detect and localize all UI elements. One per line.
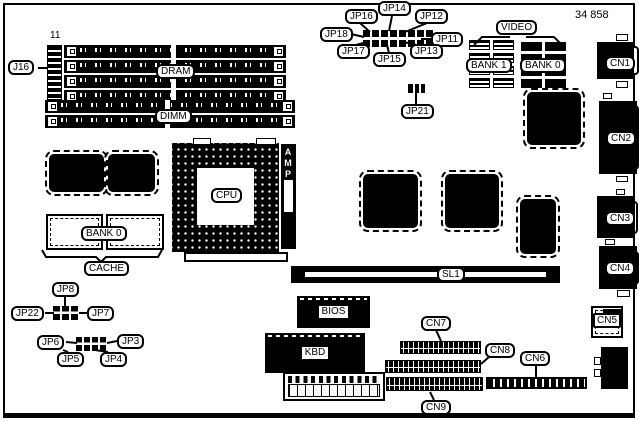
front-panel-connector (283, 372, 385, 401)
ic-chip (445, 174, 499, 228)
socket-tab (193, 138, 211, 145)
j16-label: J16 (8, 60, 34, 75)
power-connector (601, 347, 628, 389)
jumper-block (372, 30, 379, 47)
jp22-label: JP22 (11, 306, 44, 321)
slot-latch (66, 46, 77, 57)
power-tab (594, 369, 601, 377)
jumper-block (62, 306, 69, 320)
sl1-label: SL1 (437, 267, 465, 282)
ic-chip (363, 174, 418, 228)
slot-latch (66, 76, 77, 87)
slot-latch (273, 61, 284, 72)
memory-chip (545, 42, 566, 51)
mounting-tab (616, 34, 628, 41)
dram-label: DRAM (156, 64, 195, 79)
cn9-label: CN9 (421, 400, 451, 415)
video-bank1-label: BANK 1 (466, 58, 512, 73)
kbd-chip: KBD (265, 333, 365, 373)
cn3-label: CN3 (605, 211, 635, 226)
bios-label: BIOS (319, 306, 349, 318)
cpu-label: CPU (211, 188, 242, 203)
cache-label: CACHE (84, 261, 129, 276)
mounting-tab (616, 176, 628, 182)
cn9-header (386, 377, 483, 391)
jumper-block (71, 306, 78, 320)
video-label: VIDEO (496, 20, 537, 35)
jp21-jumper (408, 84, 425, 93)
jp12-label: JP12 (415, 9, 448, 24)
cache-bank0-label: BANK 0 (81, 226, 127, 241)
video-controller-chip (527, 92, 581, 145)
memory-chip (521, 42, 542, 51)
jumper-block (92, 337, 98, 351)
jumper-block-row (53, 306, 78, 320)
pin-11-label: 11 (50, 30, 60, 41)
jp17-label: JP17 (337, 44, 370, 59)
cn8-label: CN8 (485, 343, 515, 358)
jp8-label: JP8 (52, 282, 79, 297)
cn6-connector (486, 377, 587, 389)
cn6-label: CN6 (520, 351, 550, 366)
slot-latch (273, 46, 284, 57)
cn7-label: CN7 (421, 316, 451, 331)
ic-chip (108, 154, 155, 192)
jp18-label: JP18 (320, 27, 353, 42)
jumper-block (381, 30, 388, 47)
sl1-slot-groove (305, 272, 546, 277)
jp13-label: JP13 (410, 44, 443, 59)
cn8-header (385, 360, 481, 373)
jp4-label: JP4 (100, 352, 127, 367)
ic-chip (49, 154, 104, 192)
amp-slot (284, 180, 293, 212)
cpu-lever-bar (184, 252, 288, 262)
mounting-tab (616, 189, 625, 195)
dimm-label: DIMM (155, 109, 192, 124)
motherboard-diagram: 11 AMP BIOS KBD (0, 0, 639, 421)
mounting-tab (603, 93, 612, 99)
jumper-block (390, 30, 397, 47)
memory-chip (493, 40, 514, 50)
slot-latch (273, 76, 284, 87)
cn1-label: CN1 (605, 56, 635, 71)
jumper-block (100, 337, 106, 351)
slot-latch (47, 116, 58, 127)
slot-latch (282, 101, 293, 112)
connector-pin-row (288, 376, 380, 383)
jp21-label: JP21 (401, 104, 434, 119)
jp15-label: JP15 (373, 52, 406, 67)
amp-label: AMP (283, 147, 293, 180)
socket-tab (256, 138, 276, 145)
cn2-label: CN2 (606, 131, 636, 146)
memory-chip (545, 79, 566, 88)
sl1-slot (291, 266, 560, 283)
jp6-label: JP6 (37, 335, 64, 350)
memory-chip (469, 78, 490, 88)
video-bank0-label: BANK 0 (520, 58, 566, 73)
mounting-tab (616, 81, 628, 88)
slot-latch (66, 61, 77, 72)
cn7-header (400, 341, 481, 354)
jp16-label: JP16 (345, 9, 378, 24)
power-tab (594, 357, 601, 365)
cn4-label: CN4 (605, 261, 635, 276)
cn5-label: CN5 (593, 313, 621, 328)
memory-chip (469, 40, 490, 50)
slot-latch (47, 101, 58, 112)
j16-connector (47, 45, 62, 100)
jp3-label: JP3 (117, 334, 144, 349)
connector-socket-row (288, 384, 380, 397)
dram-simm-slot (64, 45, 286, 58)
jumper-block (76, 337, 82, 351)
memory-chip (521, 79, 542, 88)
jumper-block (84, 337, 90, 351)
jp14-label: JP14 (378, 1, 411, 16)
mounting-tab (605, 239, 615, 245)
slot-latch (282, 116, 293, 127)
part-number: 34 858 (575, 9, 609, 21)
memory-chip (493, 78, 514, 88)
kbd-label: KBD (302, 347, 329, 359)
mounting-tab (617, 290, 630, 297)
jp5-label: JP5 (57, 352, 84, 367)
jumper-block (53, 306, 60, 320)
ic-chip (520, 199, 556, 254)
jumper-block (399, 30, 406, 47)
jp7-label: JP7 (87, 306, 114, 321)
jumper-block-row (76, 337, 106, 351)
bios-chip: BIOS (297, 296, 370, 328)
